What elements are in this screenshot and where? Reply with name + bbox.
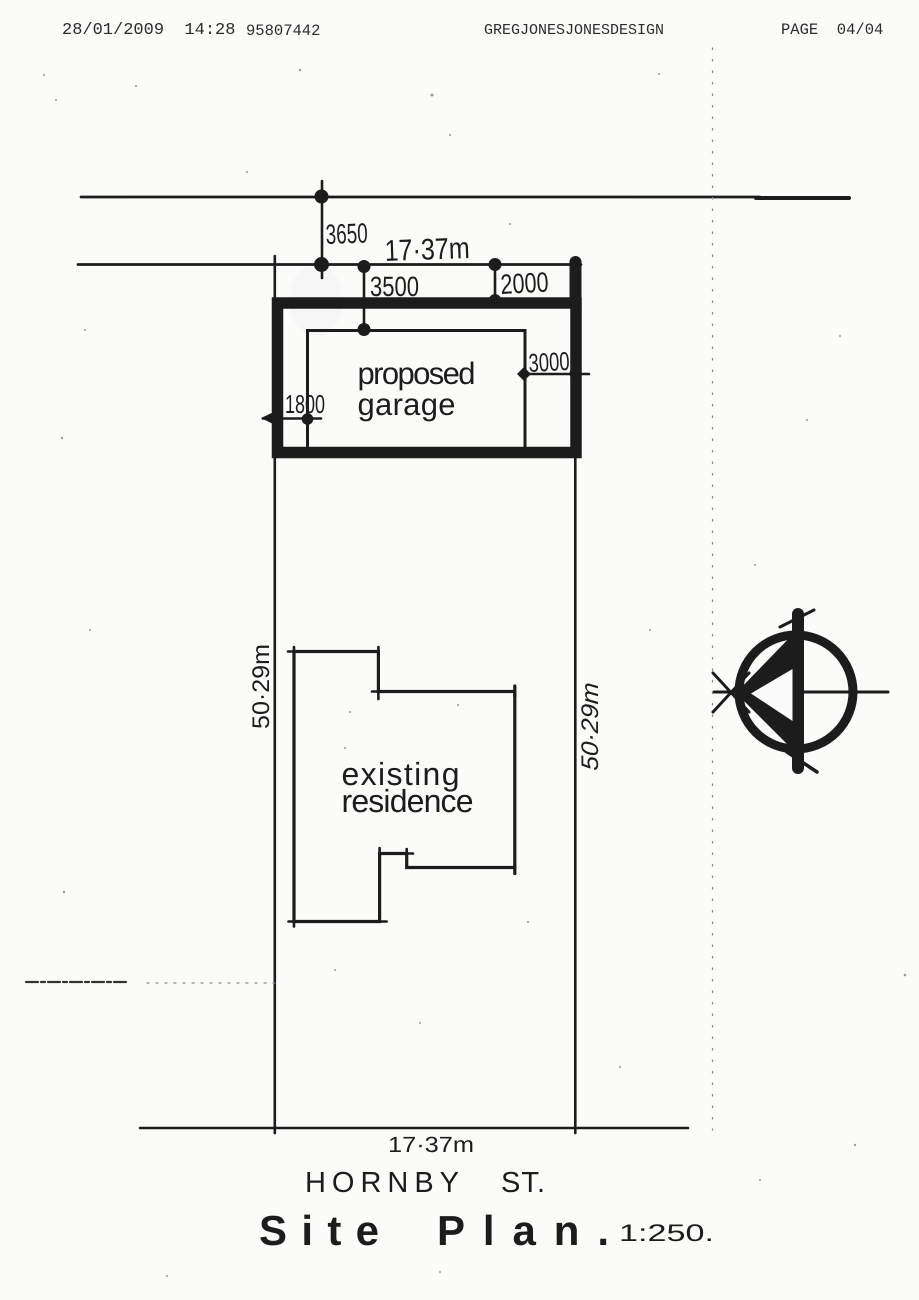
svg-text:3650: 3650 [325,218,368,250]
svg-text:proposed: proposed [358,356,476,391]
svg-text:3000: 3000 [528,346,571,378]
svg-text:1:250.: 1:250. [619,1220,714,1247]
svg-text:1800: 1800 [285,389,325,419]
svg-text:ST.: ST. [501,1167,545,1199]
svg-text:residence: residence [342,783,474,819]
svg-text:Plan.: Plan. [437,1207,609,1254]
svg-text:HORNBY: HORNBY [305,1167,459,1199]
svg-text:3500: 3500 [370,271,419,302]
svg-text:2000: 2000 [500,267,550,300]
svg-text:garage: garage [358,387,456,422]
svg-text:50·29m: 50·29m [577,682,604,772]
svg-text:Site: Site [259,1207,379,1254]
svg-text:50·29m: 50·29m [248,644,275,729]
svg-text:17·37m: 17·37m [388,1132,474,1157]
svg-text:17·37m: 17·37m [384,232,470,268]
